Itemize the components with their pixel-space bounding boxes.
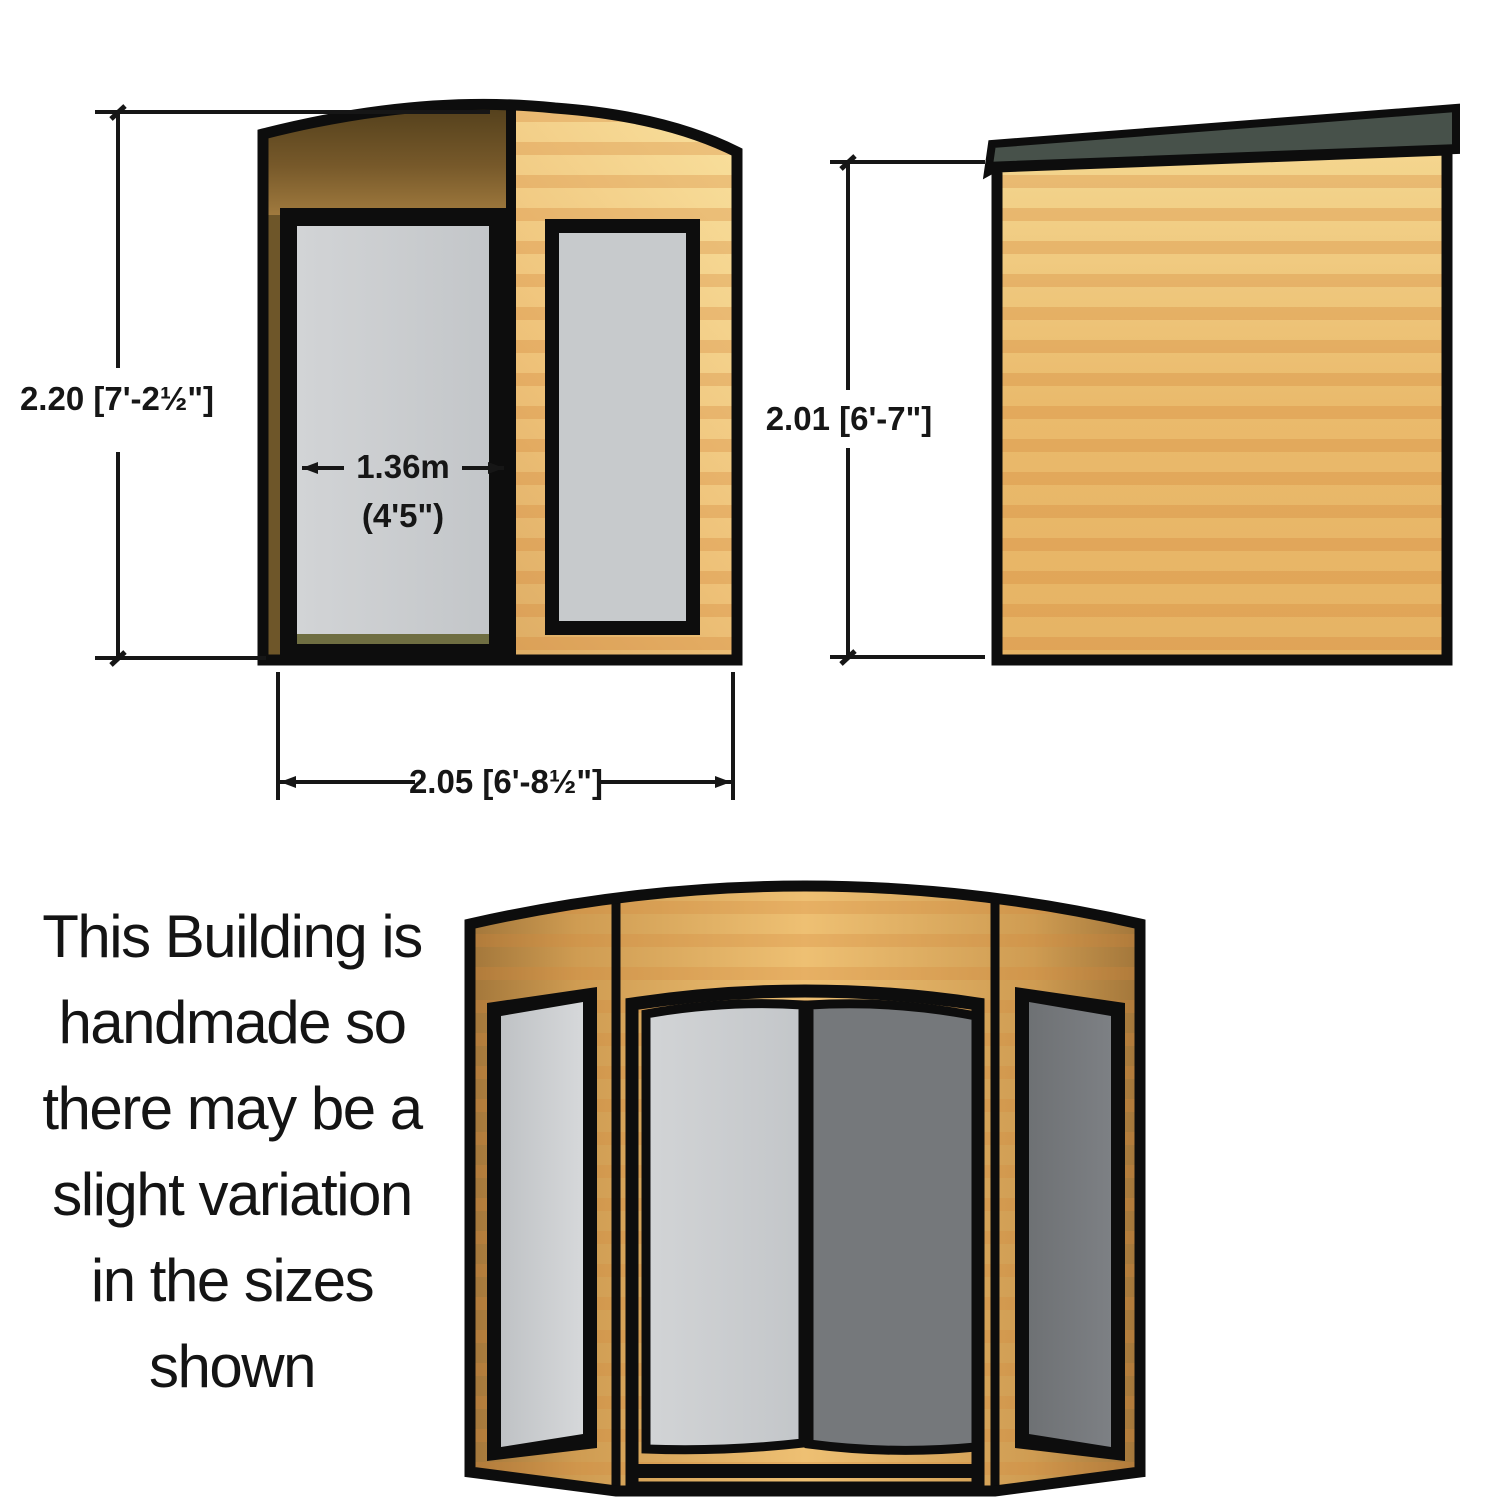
- side-elevation-drawing: [988, 108, 1456, 660]
- perspective-view-drawing: [470, 848, 1140, 1498]
- handmade-note: This Building is handmade so there may b…: [6, 894, 458, 1410]
- product-dimension-diagram: 2.20 [7'-2½"] 2.05 [6'-8½"] 1.36m (4'5")…: [0, 0, 1500, 1500]
- dimension-arrow: [715, 776, 731, 788]
- note-line: handmade so: [6, 980, 458, 1066]
- perspective-door-bottom-rail: [634, 1464, 978, 1478]
- perspective-left-door-glass: [646, 1004, 803, 1450]
- front-width-dimension-label: 2.05 [6'-8½"]: [409, 763, 603, 800]
- front-door-kick-strip: [297, 634, 489, 644]
- note-line: there may be a: [6, 1066, 458, 1152]
- note-line: slight variation: [6, 1152, 458, 1238]
- perspective-right-door-glass: [809, 1004, 976, 1451]
- front-height-dimension-label: 2.20 [7'-2½"]: [20, 380, 214, 417]
- front-elevation-drawing: [263, 100, 741, 660]
- note-line: shown: [6, 1324, 458, 1410]
- front-window-glass: [559, 233, 686, 621]
- side-height-dimension-label: 2.01 [6'-7"]: [766, 400, 933, 437]
- side-wall-grain: [997, 140, 1447, 660]
- note-line: This Building is: [6, 894, 458, 980]
- dimension-arrow: [280, 776, 296, 788]
- door-width-metric-label: 1.36m: [356, 448, 450, 485]
- note-line: in the sizes: [6, 1238, 458, 1324]
- door-width-imperial-label: (4'5"): [362, 497, 444, 534]
- perspective-left-window-glass: [501, 1002, 583, 1447]
- front-door-glass: [297, 226, 489, 634]
- perspective-right-window-glass: [1029, 1002, 1111, 1447]
